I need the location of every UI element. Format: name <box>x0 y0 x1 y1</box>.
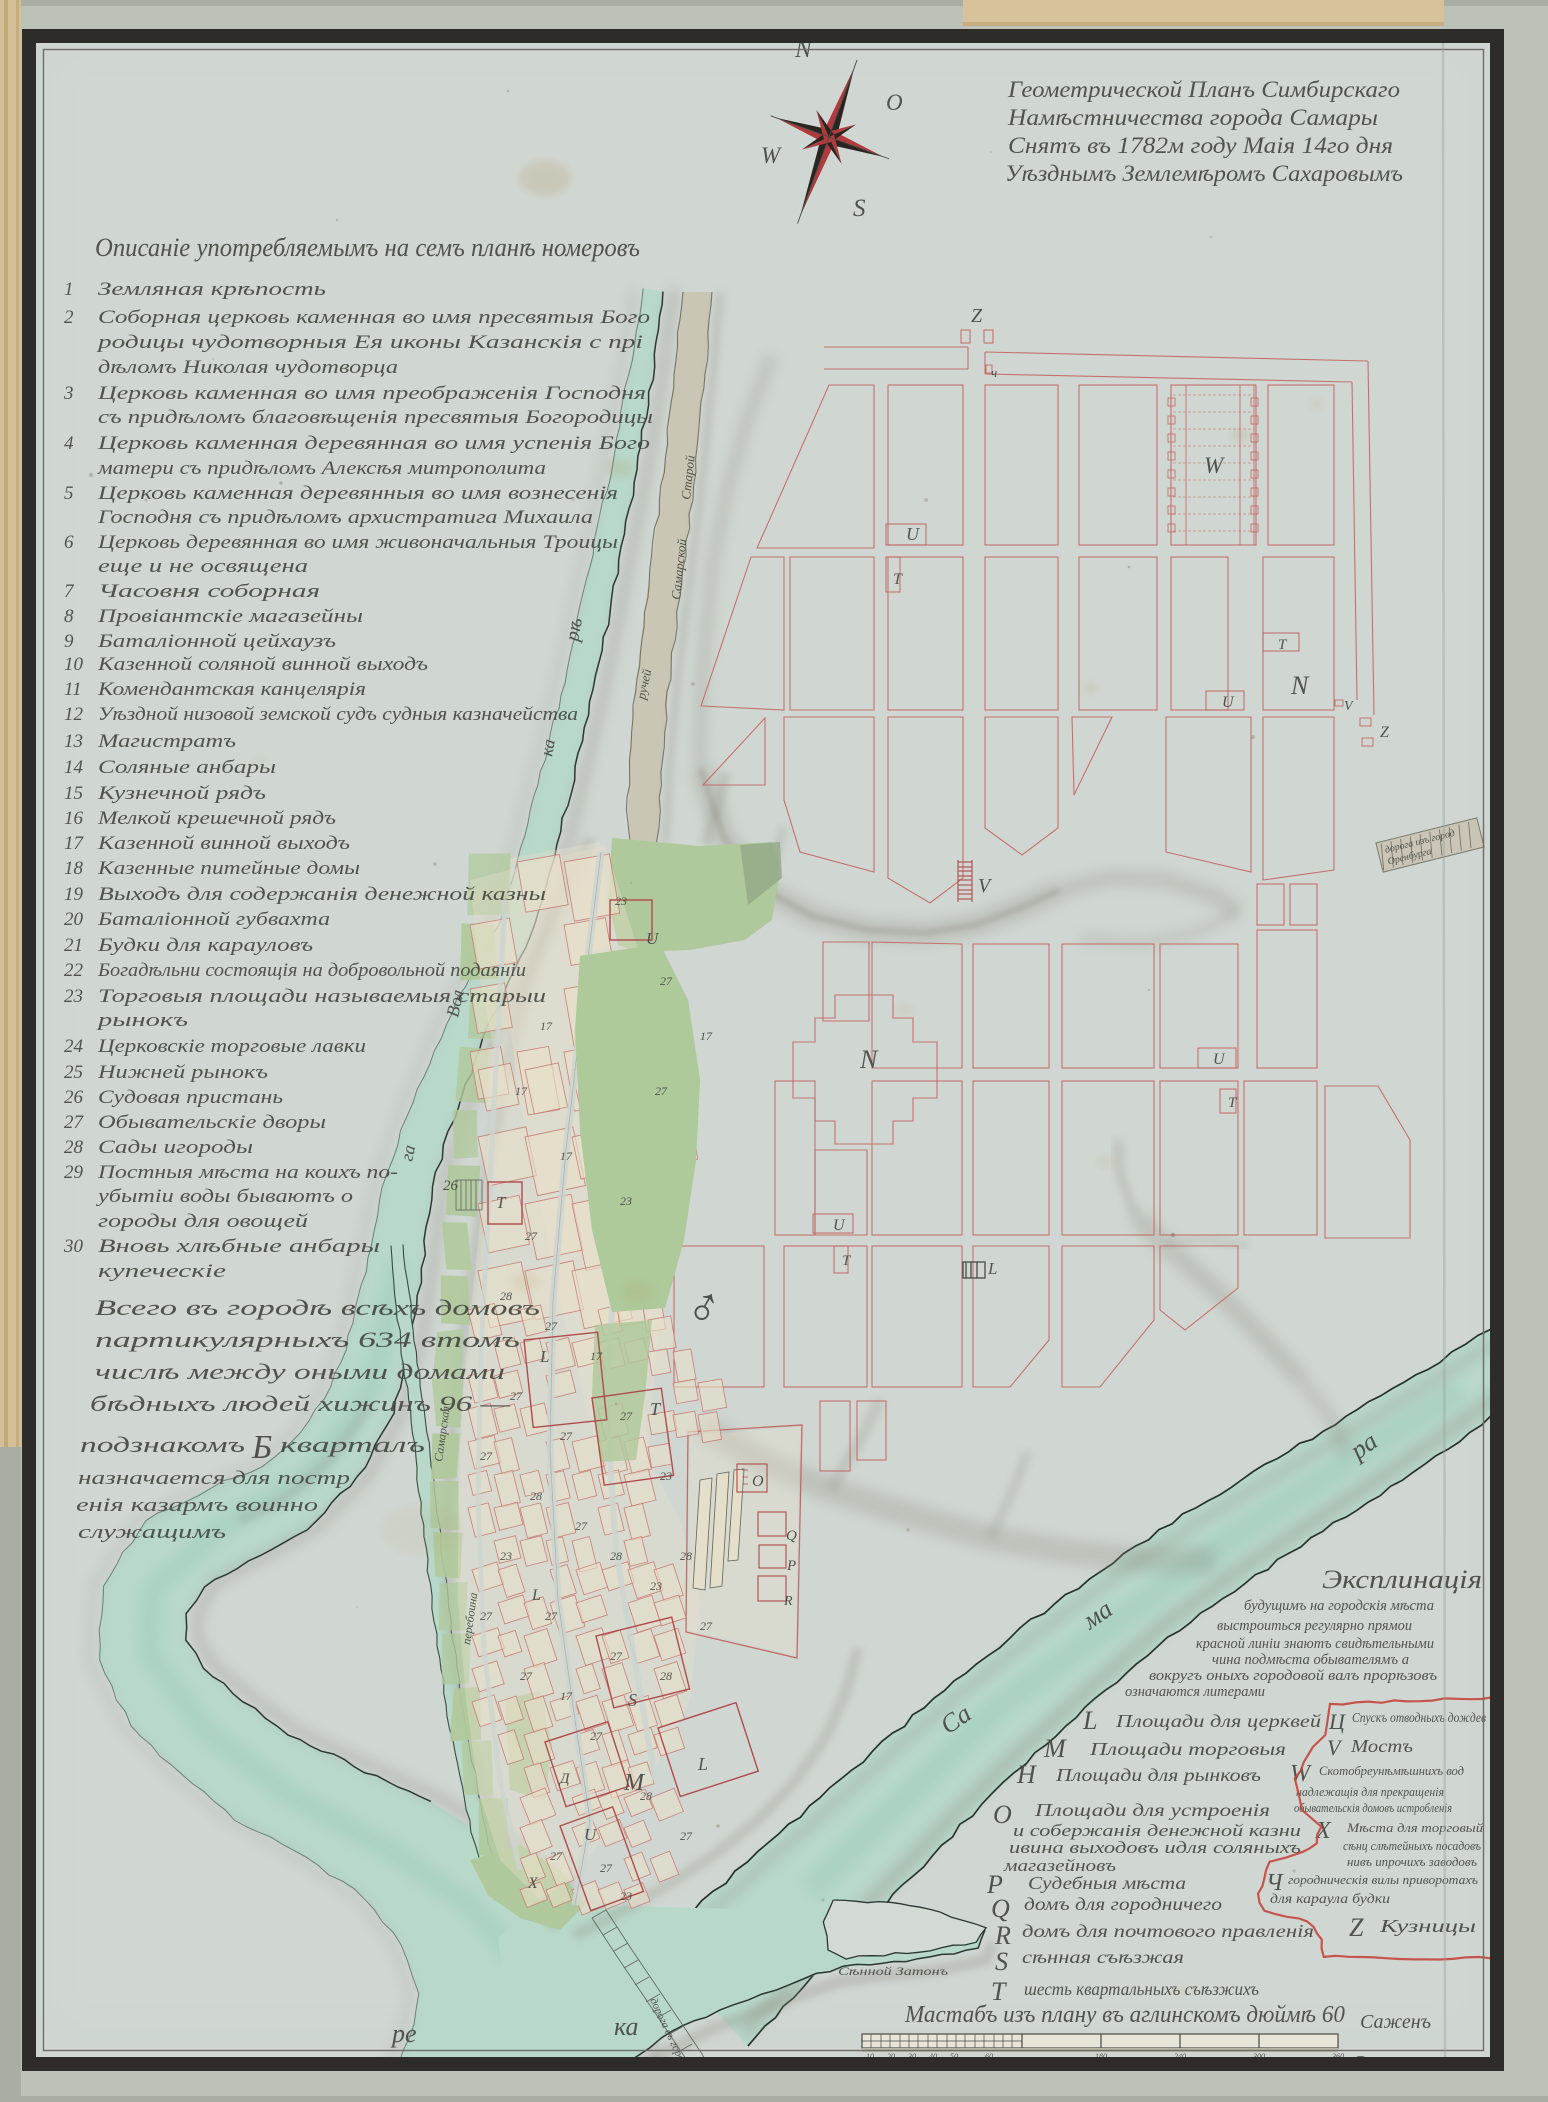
svg-text:O: O <box>752 1473 764 1490</box>
svg-text:выстроиться регулярно прямои: выстроиться регулярно прямои <box>1217 1618 1412 1634</box>
svg-text:Площади для церквей: Площади для церквей <box>1115 1711 1321 1731</box>
svg-text:17: 17 <box>560 1149 573 1163</box>
svg-text:U: U <box>1213 1051 1226 1068</box>
svg-text:Соборная церковь каменная во и: Соборная церковь каменная во имя пресвят… <box>98 307 650 328</box>
svg-text:съ придѣломъ благовѣщенія прес: съ придѣломъ благовѣщенія пресвятыя Бого… <box>98 407 653 428</box>
svg-text:27: 27 <box>480 1609 493 1623</box>
svg-text:27: 27 <box>64 1112 85 1133</box>
svg-text:Кузнечной рядъ: Кузнечной рядъ <box>97 783 267 804</box>
svg-text:O: O <box>886 90 903 115</box>
svg-text:Спускъ отводныхъ дождев: Спускъ отводныхъ дождев <box>1352 1711 1486 1726</box>
svg-text:обывательскія домовъ истроблен: обывательскія домовъ истробленія <box>1294 1800 1452 1815</box>
svg-text:L: L <box>1082 1706 1097 1735</box>
svg-text:Уѣзднымъ Землемѣромъ Сахаровым: Уѣзднымъ Землемѣромъ Сахаровымъ <box>1005 161 1403 186</box>
svg-text:U: U <box>906 524 920 544</box>
svg-text:Торговыя площади называемыя ст: Торговыя площади называемыя старыи <box>98 986 546 1007</box>
svg-text:ка: ка <box>614 2012 639 2041</box>
svg-text:2: 2 <box>64 307 74 328</box>
svg-text:Казенной соляной винной выходъ: Казенной соляной винной выходъ <box>97 654 428 675</box>
svg-text:Земляная крѣпость: Земляная крѣпость <box>98 279 326 300</box>
svg-text:рынокъ: рынокъ <box>95 1010 188 1031</box>
svg-text:R: R <box>994 1921 1011 1950</box>
svg-text:нивъ ипрочихъ заводовъ: нивъ ипрочихъ заводовъ <box>1347 1854 1477 1869</box>
svg-text:17: 17 <box>700 1029 713 1043</box>
svg-text:Ц: Ц <box>1328 1709 1346 1734</box>
svg-text:означаются литерами: означаются литерами <box>1125 1684 1265 1700</box>
svg-text:городы для овощей: городы для овощей <box>98 1211 309 1232</box>
svg-text:Господня съ придѣломъ архистра: Господня съ придѣломъ архистратига Михаи… <box>97 507 593 528</box>
svg-text:28: 28 <box>640 1789 652 1803</box>
svg-text:13: 13 <box>64 731 83 752</box>
svg-text:27: 27 <box>610 1649 623 1663</box>
svg-text:W: W <box>1204 453 1225 478</box>
svg-text:Скотобреунѣмѣшнихъ вод: Скотобреунѣмѣшнихъ вод <box>1319 1763 1464 1778</box>
svg-text:Судебныя мѣста: Судебныя мѣста <box>1028 1873 1186 1893</box>
svg-text:15: 15 <box>64 783 83 804</box>
svg-text:27: 27 <box>480 1449 493 1463</box>
svg-text:кварталъ: кварталъ <box>280 1432 425 1457</box>
svg-text:27: 27 <box>620 1409 633 1423</box>
svg-text:27: 27 <box>575 1519 588 1533</box>
svg-text:29: 29 <box>64 1162 84 1183</box>
svg-text:25: 25 <box>64 1062 83 1083</box>
svg-text:O: O <box>993 1800 1012 1829</box>
svg-text:V: V <box>1344 699 1354 714</box>
svg-text:рѣ: рѣ <box>561 616 587 645</box>
svg-text:23: 23 <box>64 986 83 1007</box>
svg-text:27: 27 <box>700 1619 713 1633</box>
svg-text:28: 28 <box>610 1549 622 1563</box>
svg-text:14: 14 <box>64 757 84 778</box>
svg-text:Комендантская канцелярія: Комендантская канцелярія <box>97 679 366 700</box>
svg-text:28: 28 <box>680 1549 692 1563</box>
svg-text:Уѣздной низовой земской судъ с: Уѣздной низовой земской судъ судныя казн… <box>98 704 578 725</box>
svg-text:городническія вилы приворотахъ: городническія вилы приворотахъ <box>1288 1872 1478 1887</box>
svg-text:17: 17 <box>590 1349 603 1363</box>
svg-text:Магистратъ: Магистратъ <box>97 731 236 752</box>
svg-text:ч: ч <box>991 365 997 380</box>
svg-text:Z: Z <box>971 305 983 327</box>
svg-text:27: 27 <box>680 1829 693 1843</box>
svg-text:енія казармъ воинно: енія казармъ воинно <box>76 1495 318 1516</box>
svg-text:домъ для городничего: домъ для городничего <box>1024 1894 1222 1914</box>
svg-text:6: 6 <box>64 532 74 553</box>
svg-text:Мостъ: Мостъ <box>1350 1736 1413 1756</box>
svg-text:чина подмѣста обывателямъ а: чина подмѣста обывателямъ а <box>1212 1652 1409 1668</box>
svg-text:N: N <box>1290 671 1310 700</box>
svg-text:Кузницы: Кузницы <box>1379 1916 1476 1936</box>
svg-text:23: 23 <box>500 1549 512 1563</box>
svg-text:служащимъ: служащимъ <box>78 1522 226 1543</box>
svg-text:подзнакомъ: подзнакомъ <box>80 1432 245 1457</box>
svg-text:еще и не освящена: еще и не освящена <box>98 556 308 577</box>
svg-text:ре: ре <box>390 2019 417 2048</box>
svg-text:купеческіе: купеческіе <box>98 1261 226 1282</box>
svg-text:19: 19 <box>64 884 84 905</box>
svg-text:H: H <box>1016 1760 1037 1789</box>
svg-text:Д: Д <box>558 1771 571 1787</box>
svg-text:22: 22 <box>64 960 84 981</box>
svg-text:27: 27 <box>525 1229 538 1243</box>
svg-text:17: 17 <box>64 833 85 854</box>
svg-text:Эксплинація: Эксплинація <box>1322 1565 1482 1594</box>
svg-text:Саженъ: Саженъ <box>1360 2011 1431 2033</box>
svg-text:сѣнная съѣзжая: сѣнная съѣзжая <box>1022 1947 1184 1967</box>
svg-text:Q: Q <box>786 1528 797 1544</box>
svg-text:Казенной винной выходъ: Казенной винной выходъ <box>97 833 350 854</box>
svg-text:27: 27 <box>590 1729 603 1743</box>
svg-text:27: 27 <box>660 974 673 988</box>
svg-text:30: 30 <box>63 1236 84 1257</box>
svg-text:Мелкой крешечной рядъ: Мелкой крешечной рядъ <box>97 808 336 829</box>
svg-text:M: M <box>1043 1734 1067 1763</box>
svg-text:Постныя мѣста на коихъ по-: Постныя мѣста на коихъ по- <box>97 1162 398 1183</box>
svg-text:27: 27 <box>545 1319 558 1333</box>
svg-text:Баталіонной цейхаузъ: Баталіонной цейхаузъ <box>97 631 336 652</box>
svg-text:Церковь каменная во имя преобр: Церковь каменная во имя преображенія Гос… <box>97 383 646 404</box>
svg-text:R: R <box>783 1594 793 1609</box>
svg-text:L: L <box>531 1587 541 1604</box>
svg-text:28: 28 <box>64 1137 84 1158</box>
svg-text:Богадѣльни состоящія на добров: Богадѣльни состоящія на добровольной под… <box>97 960 526 981</box>
svg-text:Церковь каменная деревянныя во: Церковь каменная деревянныя во имя возне… <box>97 483 618 504</box>
svg-text:27: 27 <box>545 1609 558 1623</box>
svg-text:U: U <box>646 929 660 948</box>
svg-text:23: 23 <box>620 1889 632 1903</box>
svg-text:3: 3 <box>63 383 74 404</box>
svg-text:U: U <box>833 1217 846 1234</box>
svg-text:вокругъ оныхъ городовой валъ п: вокругъ оныхъ городовой валъ прорѣзовъ <box>1149 1668 1437 1684</box>
svg-text:L: L <box>697 1754 708 1774</box>
svg-text:28: 28 <box>500 1289 512 1303</box>
svg-text:20: 20 <box>64 909 84 930</box>
svg-text:Церковскіе торговые лавки: Церковскіе торговые лавки <box>97 1036 366 1057</box>
svg-text:матери съ придѣломъ Алексѣя ми: матери съ придѣломъ Алексѣя митрополита <box>97 458 546 479</box>
svg-text:Нижней рынокъ: Нижней рынокъ <box>97 1062 268 1083</box>
svg-text:N: N <box>859 1045 879 1074</box>
svg-text:1: 1 <box>64 279 74 300</box>
svg-text:P: P <box>786 1558 796 1574</box>
svg-text:Описаніе употребляемымъ на с: Описаніе употребляемымъ на семъ планѣ но… <box>95 233 640 262</box>
svg-text:Судовая пристань: Судовая пристань <box>98 1087 283 1108</box>
svg-text:Намѣстничества города Самары: Намѣстничества города Самары <box>1007 105 1378 130</box>
svg-text:7: 7 <box>64 581 75 602</box>
svg-text:Баталіонной губвахта: Баталіонной губвахта <box>97 909 330 930</box>
svg-text:Мѣста для торговый: Мѣста для торговый <box>1346 1820 1484 1835</box>
svg-text:U: U <box>1222 694 1235 711</box>
svg-text:24: 24 <box>64 1036 84 1057</box>
svg-text:27: 27 <box>550 1849 563 1863</box>
svg-text:для караула будки: для караула будки <box>1270 1892 1390 1907</box>
svg-text:21: 21 <box>64 935 83 956</box>
svg-text:Соляные анбары: Соляные анбары <box>98 757 276 778</box>
svg-text:11: 11 <box>64 679 82 700</box>
svg-text:будущимъ на городскія мѣста: будущимъ на городскія мѣста <box>1244 1598 1434 1614</box>
svg-text:5: 5 <box>64 483 74 504</box>
svg-text:12: 12 <box>64 704 84 725</box>
svg-text:назначается для постр: назначается для постр <box>78 1468 350 1489</box>
svg-text:S: S <box>853 195 866 222</box>
svg-text:Часовня соборная: Часовня соборная <box>98 581 320 602</box>
svg-text:S: S <box>628 1690 637 1710</box>
svg-text:убытіи воды бываютъ о: убытіи воды бываютъ о <box>95 1186 353 1207</box>
svg-text:Площади для устроенія: Площади для устроенія <box>1034 1800 1270 1820</box>
svg-text:T: T <box>496 1193 507 1212</box>
svg-text:ка: ка <box>536 737 559 757</box>
svg-text:Церковь деревянная во имя живо: Церковь деревянная во имя живоначальныя … <box>97 532 618 553</box>
svg-text:Снятъ въ 1782м году Маія 14го: Снятъ въ 1782м году Маія 14го дня <box>1008 133 1393 158</box>
svg-text:18: 18 <box>64 858 84 879</box>
svg-text:23: 23 <box>615 894 627 908</box>
svg-text:Церковь каменная деревянная во: Церковь каменная деревянная во имя успен… <box>97 433 650 454</box>
svg-text:надлежащія для прекращенія: надлежащія для прекращенія <box>1296 1784 1444 1799</box>
svg-text:L: L <box>539 1347 549 1366</box>
svg-text:Площади торговыя: Площади торговыя <box>1089 1739 1286 1759</box>
svg-text:Z: Z <box>1380 724 1390 741</box>
svg-text:27: 27 <box>560 1429 573 1443</box>
svg-text:27: 27 <box>520 1669 533 1683</box>
svg-text:Казенные питейные домы: Казенные питейные домы <box>97 858 360 879</box>
svg-text:сѣнц слѣтейныхъ посадовъ: сѣнц слѣтейныхъ посадовъ <box>1343 1838 1481 1853</box>
svg-text:домъ для почтового правленія: домъ для почтового правленія <box>1022 1921 1314 1941</box>
svg-text:Вновь хлѣбные анбары: Вновь хлѣбные анбары <box>98 1236 380 1257</box>
svg-text:26: 26 <box>64 1087 84 1108</box>
svg-text:17: 17 <box>515 1084 528 1098</box>
svg-text:L: L <box>987 1259 997 1278</box>
svg-text:U: U <box>584 1825 598 1844</box>
svg-text:26: 26 <box>443 1178 459 1194</box>
svg-text:28: 28 <box>660 1669 672 1683</box>
svg-text:Выходъ для содержанія денежной: Выходъ для содержанія денежной казны <box>98 884 546 905</box>
svg-text:17: 17 <box>540 1019 553 1033</box>
svg-text:S: S <box>995 1947 1008 1976</box>
svg-text:8: 8 <box>64 606 74 627</box>
svg-text:Z: Z <box>1349 1913 1364 1942</box>
svg-text:27: 27 <box>655 1084 668 1098</box>
svg-text:Провіантскіе магазейны: Провіантскіе магазейны <box>97 606 363 627</box>
svg-text:23: 23 <box>660 1469 672 1483</box>
svg-text:числѣ между оными домами: числѣ между оными домами <box>95 1359 505 1384</box>
svg-text:красной линіи знаютъ свидѣтель: красной линіи знаютъ свидѣтельными <box>1196 1636 1434 1652</box>
svg-text:23: 23 <box>620 1194 632 1208</box>
svg-text:27: 27 <box>600 1861 613 1875</box>
svg-text:шесть квартальныхъ съѣзжихъ: шесть квартальныхъ съѣзжихъ <box>1024 1979 1259 1999</box>
svg-text:Q: Q <box>991 1894 1010 1923</box>
svg-text:9: 9 <box>64 631 74 652</box>
svg-text:Б: Б <box>251 1429 272 1466</box>
svg-text:4: 4 <box>64 433 74 454</box>
svg-text:Всего въ городѣ всѣхъ домовъ: Всего въ городѣ всѣхъ домовъ <box>95 1295 540 1320</box>
svg-text:Площади для рынковъ: Площади для рынковъ <box>1055 1765 1261 1785</box>
svg-text:Сѣнной Затонъ: Сѣнной Затонъ <box>838 1964 948 1978</box>
svg-text:X: X <box>527 1875 539 1892</box>
svg-text:27: 27 <box>510 1389 523 1403</box>
svg-text:Сады игороды: Сады игороды <box>98 1137 253 1158</box>
svg-text:Геометрической Планъ Симбирска: Геометрической Планъ Симбирскаго <box>1007 77 1400 102</box>
svg-text:10: 10 <box>64 654 84 675</box>
svg-text:W: W <box>761 143 782 168</box>
svg-text:родицы чудотворныя Ея иконы Ка: родицы чудотворныя Ея иконы Казанскія с … <box>95 332 643 353</box>
svg-text:партикулярныхъ 634 втомъ: партикулярныхъ 634 втомъ <box>95 1327 520 1352</box>
svg-text:дѣломъ Николая чудотворца: дѣломъ Николая чудотворца <box>98 357 398 378</box>
svg-text:16: 16 <box>64 808 84 829</box>
svg-text:T: T <box>893 571 903 588</box>
svg-text:Будки для карауловъ: Будки для карауловъ <box>97 935 313 956</box>
svg-text:Обывательскіе дворы: Обывательскіе дворы <box>98 1112 326 1133</box>
svg-text:23: 23 <box>650 1579 662 1593</box>
svg-text:17: 17 <box>560 1689 573 1703</box>
svg-text:28: 28 <box>530 1489 542 1503</box>
svg-text:Мастабъ изъ плану въ агл: Мастабъ изъ плану въ аглинскомъ дюймѣ 60 <box>904 2002 1345 2028</box>
svg-text:ивина выходовъ идля соляныхъ: ивина выходовъ идля соляныхъ <box>1009 1838 1301 1857</box>
